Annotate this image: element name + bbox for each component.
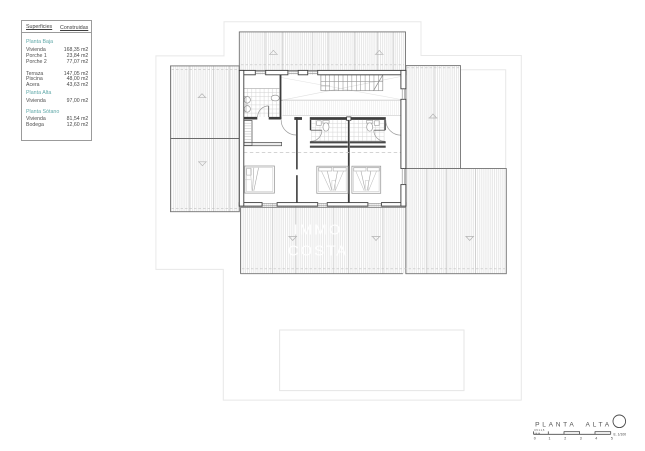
- svg-text:1: 1: [549, 436, 551, 440]
- svg-text:IMMO: IMMO: [294, 222, 343, 239]
- svg-text:2: 2: [564, 436, 566, 440]
- svg-text:3: 3: [580, 436, 582, 440]
- svg-text:0,5 1 1,5: 0,5 1 1,5: [534, 428, 545, 432]
- svg-text:4: 4: [595, 436, 597, 440]
- svg-text:0: 0: [534, 436, 536, 440]
- svg-text:PLANTA ALTA: PLANTA ALTA: [535, 422, 612, 429]
- svg-text:5: 5: [611, 436, 613, 440]
- svg-text:COSTA: COSTA: [288, 243, 349, 260]
- svg-text:E. 1/100: E. 1/100: [614, 433, 627, 437]
